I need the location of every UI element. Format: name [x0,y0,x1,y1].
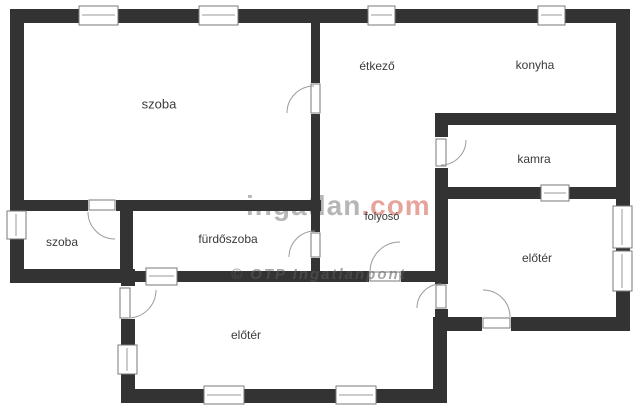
door-eloter-right-exit [482,290,511,332]
window-kamra-eloter [541,185,569,201]
window-eloter-bottom-1 [204,386,244,404]
wall-szoba-furdoszoba-divider [120,211,133,270]
window-top-3 [368,6,395,25]
wall-small-szoba-bottom [10,269,135,283]
room-label-szoba-small: szoba [46,235,78,249]
wall-szoba-horizontal-divider [10,200,321,211]
room-label-furdoszoba: fürdőszoba [198,232,257,246]
door-szoba-small [88,198,116,239]
wall-eloter-bottom [121,389,447,403]
room-label-eloter-bottom: előtér [231,328,261,342]
room-label-etkezo: étkező [359,59,394,73]
door-eloter-entrance [118,286,156,319]
room-label-konyha: konyha [516,58,555,72]
window-right-eloter-1 [613,206,632,248]
room-label-szoba-large: szoba [142,97,177,112]
room-label-kamra: kamra [517,152,550,166]
window-top-1 [79,6,118,25]
door-kamra [433,137,466,168]
door-furdoszoba [289,231,323,258]
floor-plan: ingatlan.com [0,0,640,413]
wall-kamra-eloter-divider [435,187,630,199]
wall-outer-left [10,9,24,283]
window-top-4 [538,6,565,25]
door-folyoso-eloter-right [417,284,449,309]
window-eloter-bottom-2 [336,386,376,404]
watermark-secondary: © OTP Ingatlanpont [231,266,407,283]
window-right-eloter-2 [613,251,632,291]
window-eloter-left [118,345,137,374]
window-left-szoba-small [7,211,26,239]
room-label-folyoso: folyosó [365,211,400,223]
window-furdoszoba-eloter [146,268,177,285]
wall-konyha-kamra-divider [435,113,630,125]
wall-right-section-bottom [433,317,630,331]
room-label-eloter-right: előtér [522,251,552,265]
door-szoba-large [287,83,323,114]
window-top-2 [199,6,238,25]
